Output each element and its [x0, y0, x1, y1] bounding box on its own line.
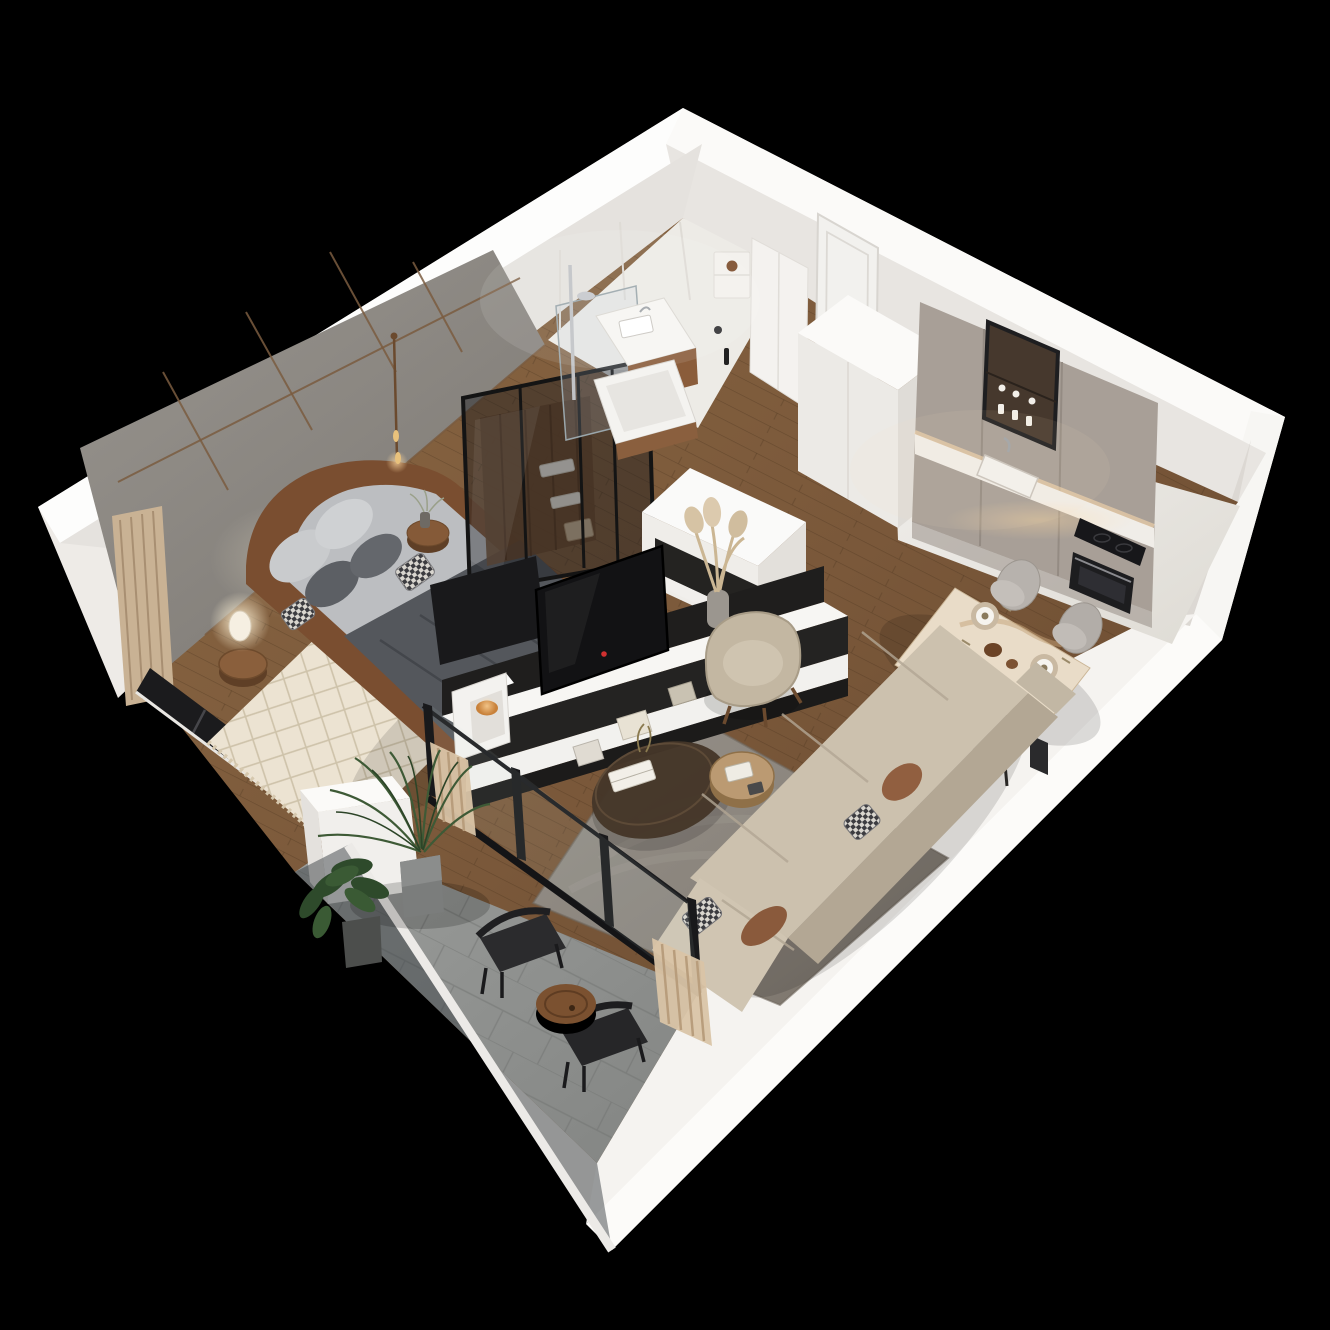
table-vase-small: [1006, 659, 1018, 669]
apartment-3d-render: 3D isometric cutaway floor plan render o…: [0, 0, 1330, 1330]
balcony-side-table: [536, 984, 596, 1034]
table-vase: [984, 643, 1002, 657]
toilet-brush: [724, 348, 729, 365]
side-table-round: [710, 752, 774, 808]
bedside-stool-left: [219, 649, 267, 687]
floorplan-canvas: 3D isometric cutaway floor plan render o…: [0, 0, 1330, 1330]
armchair: [704, 612, 801, 727]
flower-vase: [420, 512, 430, 528]
tv-standby-led: [601, 651, 607, 657]
table-lamp: [210, 592, 270, 652]
